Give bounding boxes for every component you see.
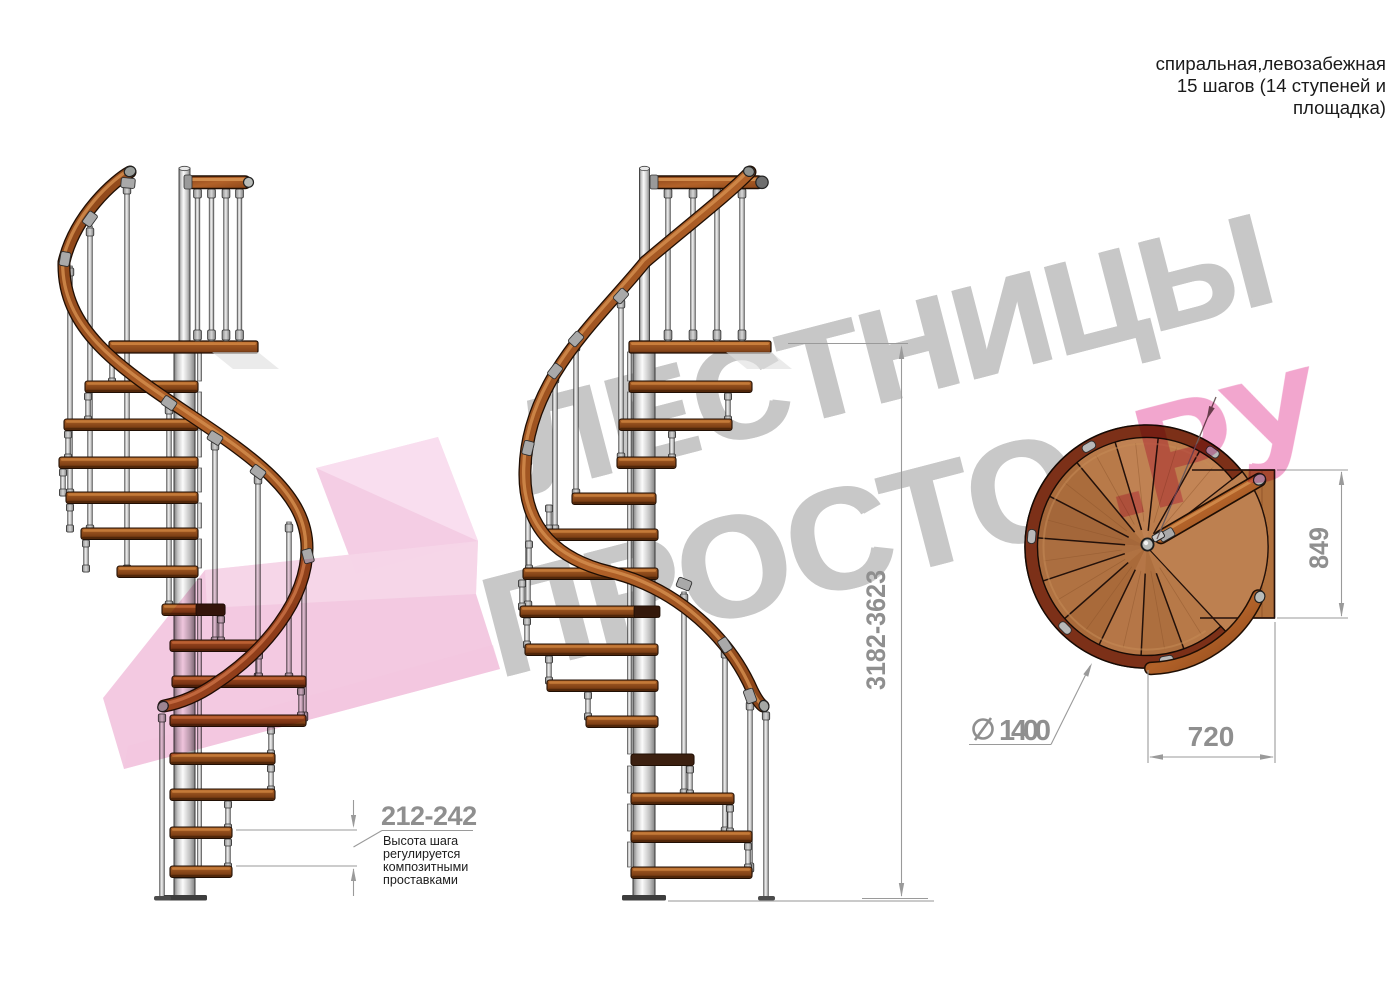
svg-text:3182-3623: 3182-3623 (860, 570, 891, 690)
svg-text:спиральная,левозабежная15 шаго: спиральная,левозабежная15 шагов (14 ступ… (1156, 53, 1386, 118)
svg-text:1400: 1400 (999, 715, 1051, 747)
svg-text:Высота шагарегулируетсякомпози: Высота шагарегулируетсякомпозитнымипрост… (383, 834, 468, 887)
svg-text:212-242: 212-242 (381, 801, 477, 831)
svg-text:849: 849 (1303, 527, 1334, 569)
svg-text:720: 720 (1188, 721, 1235, 752)
